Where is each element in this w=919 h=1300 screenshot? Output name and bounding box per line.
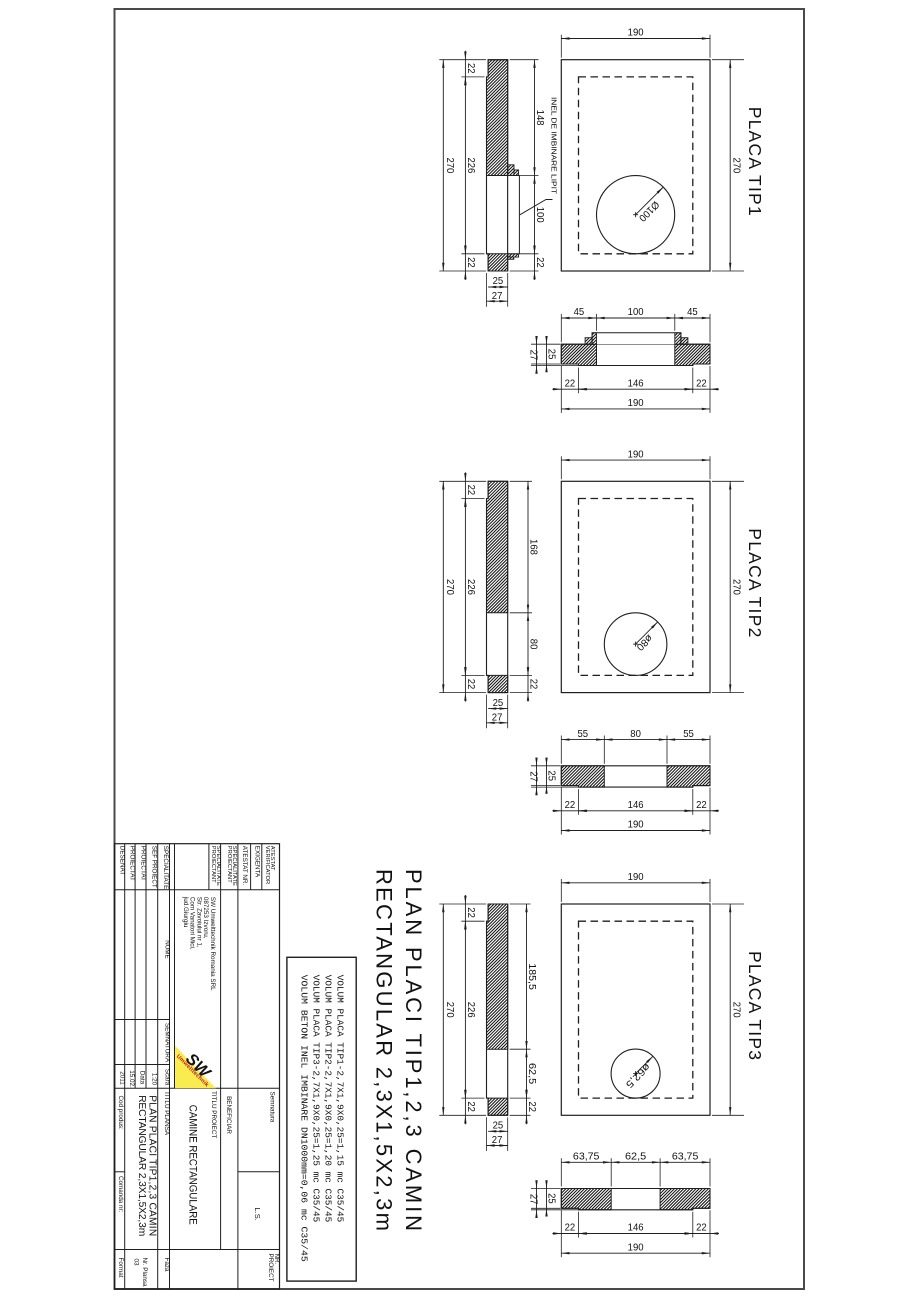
svg-text:ATESTAT: ATESTAT (269, 846, 275, 871)
svg-text:VOLUM BETON INEL IMBINARE DN10: VOLUM BETON INEL IMBINARE DN1000mm=0,06 … (299, 975, 310, 1262)
svg-text:15.02.: 15.02. (128, 1070, 135, 1088)
svg-text:80: 80 (630, 729, 641, 740)
svg-text:25: 25 (493, 1121, 504, 1132)
svg-text:RECTANGULAR 2,3X1,5X2,3m: RECTANGULAR 2,3X1,5X2,3m (371, 869, 396, 1231)
svg-text:22: 22 (465, 679, 476, 690)
svg-text:DESENAT: DESENAT (118, 846, 125, 875)
svg-text:226: 226 (465, 157, 476, 173)
svg-text:22: 22 (465, 63, 476, 74)
svg-text:100: 100 (628, 307, 644, 318)
svg-text:Cod produs:: Cod produs: (117, 1096, 124, 1131)
svg-text:Scara: Scara (163, 1069, 170, 1086)
svg-text:27: 27 (528, 1194, 539, 1205)
svg-text:27: 27 (492, 1135, 503, 1146)
svg-text:TITLU PLANSA: TITLU PLANSA (163, 1091, 170, 1136)
svg-text:45: 45 (687, 307, 698, 318)
svg-text:SPECIALITATE: SPECIALITATE (231, 846, 237, 886)
svg-text:22: 22 (696, 1223, 707, 1234)
svg-text:146: 146 (628, 1223, 644, 1234)
svg-text:Format: Format (117, 1258, 124, 1278)
svg-text:146: 146 (628, 800, 644, 811)
svg-text:VOLUM PLACA TIP3-2,7X1,9X0,25=: VOLUM PLACA TIP3-2,7X1,9X0,25=1,25 mc C3… (311, 975, 322, 1222)
svg-text:148: 148 (534, 110, 545, 126)
svg-text:80: 80 (527, 639, 538, 650)
svg-text:190: 190 (628, 820, 644, 831)
svg-text:185,5: 185,5 (526, 963, 537, 990)
svg-text:62,5: 62,5 (625, 1152, 647, 1163)
svg-text:CAMINE RECTANGULARE: CAMINE RECTANGULARE (187, 1105, 199, 1225)
svg-text:55: 55 (578, 729, 589, 740)
svg-text:SPECIALITATE: SPECIALITATE (162, 846, 169, 890)
svg-text:270: 270 (444, 579, 455, 595)
svg-text:PLACA TIP1: PLACA TIP1 (745, 107, 765, 216)
svg-text:Semnatura: Semnatura (269, 1092, 276, 1123)
svg-text:45: 45 (574, 307, 585, 318)
svg-text:SPECIALITATE: SPECIALITATE (215, 846, 221, 886)
svg-text:25: 25 (545, 1193, 556, 1204)
svg-text:270: 270 (730, 1002, 741, 1018)
svg-text:22: 22 (526, 1101, 537, 1112)
svg-text:NR.: NR. (273, 1254, 280, 1265)
svg-text:22: 22 (465, 907, 476, 918)
svg-text:270: 270 (730, 157, 741, 173)
svg-text:27: 27 (492, 712, 503, 723)
svg-text:146: 146 (628, 378, 644, 389)
svg-text:22: 22 (696, 378, 707, 389)
svg-text:RECTANGULAR 2,3X1,5X2,3m: RECTANGULAR 2,3X1,5X2,3m (136, 1095, 147, 1236)
svg-text:22: 22 (465, 1101, 476, 1112)
svg-text:27: 27 (492, 291, 503, 302)
svg-text:190: 190 (628, 872, 644, 883)
svg-text:22: 22 (465, 485, 476, 496)
svg-text:L.S.: L.S. (253, 1208, 262, 1221)
svg-text:PLACA TIP3: PLACA TIP3 (745, 951, 765, 1060)
svg-text:62,5: 62,5 (526, 1063, 537, 1085)
svg-text:INEL DE IMBINARE LIPIT: INEL DE IMBINARE LIPIT (549, 97, 558, 194)
svg-text:25: 25 (545, 770, 556, 781)
svg-text:190: 190 (628, 449, 644, 460)
svg-text:NUME: NUME (163, 940, 170, 959)
svg-text:190: 190 (628, 1242, 644, 1253)
svg-text:TITLU PROIECT: TITLU PROIECT (210, 1091, 217, 1138)
svg-text:03: 03 (133, 1259, 140, 1267)
svg-text:100: 100 (534, 207, 545, 223)
svg-text:63,75: 63,75 (672, 1152, 699, 1163)
svg-text:55: 55 (683, 729, 694, 740)
svg-text:1:20: 1:20 (150, 1073, 157, 1086)
svg-text:190: 190 (628, 398, 644, 409)
svg-text:22: 22 (534, 257, 545, 268)
svg-text:270: 270 (444, 1002, 455, 1018)
svg-text:VOLUM PLACA TIP2-2,7X1,9X0,25=: VOLUM PLACA TIP2-2,7X1,9X0,25=1,20 mc C3… (323, 975, 334, 1222)
svg-text:PLACA TIP2: PLACA TIP2 (745, 528, 765, 637)
svg-text:63,75: 63,75 (573, 1152, 600, 1163)
svg-text:Faza: Faza (163, 1258, 170, 1272)
svg-text:ATESTAT NR.: ATESTAT NR. (241, 846, 248, 886)
svg-text:168: 168 (527, 539, 538, 555)
svg-text:27: 27 (528, 350, 539, 361)
svg-text:25: 25 (545, 349, 556, 360)
svg-text:22: 22 (565, 800, 576, 811)
svg-text:Data: Data (139, 1071, 146, 1085)
svg-text:22: 22 (565, 1223, 576, 1234)
svg-text:SEF PROIECT: SEF PROIECT (150, 846, 157, 888)
svg-text:22: 22 (527, 679, 538, 690)
svg-text:PROIECT: PROIECT (267, 1254, 274, 1282)
svg-text:VOLUM PLACA TIP1-2,7X1,9X0,25=: VOLUM PLACA TIP1-2,7X1,9X0,25=1,15 mc C3… (335, 975, 346, 1222)
svg-text:jud.Giurgiu: jud.Giurgiu (182, 896, 189, 928)
svg-text:Nr. Plansa: Nr. Plansa (141, 1258, 148, 1288)
svg-text:SEMNATURA: SEMNATURA (163, 1023, 170, 1063)
svg-text:22: 22 (565, 378, 576, 389)
svg-text:25: 25 (493, 698, 504, 709)
svg-text:PLAN PLACI TIP1,2,3 CAMIN: PLAN PLACI TIP1,2,3 CAMIN (401, 869, 426, 1231)
svg-text:Comanda nr:: Comanda nr: (117, 1176, 124, 1213)
svg-text:PROIECTAT: PROIECTAT (139, 846, 146, 881)
svg-text:25: 25 (493, 276, 504, 287)
svg-text:190: 190 (628, 28, 644, 39)
svg-text:BENEFICIAR: BENEFICIAR (225, 1096, 232, 1134)
svg-text:270: 270 (444, 157, 455, 173)
svg-text:27: 27 (528, 771, 539, 782)
svg-text:PROIECTAT: PROIECTAT (129, 846, 136, 881)
svg-text:226: 226 (465, 579, 476, 595)
svg-text:22: 22 (465, 257, 476, 268)
svg-text:270: 270 (730, 579, 741, 595)
svg-text:VERIFICATOR: VERIFICATOR (264, 846, 270, 884)
svg-text:2011: 2011 (118, 1071, 125, 1085)
svg-text:22: 22 (696, 800, 707, 811)
svg-text:226: 226 (465, 1002, 476, 1018)
svg-text:EXIGENTA: EXIGENTA (253, 846, 260, 878)
